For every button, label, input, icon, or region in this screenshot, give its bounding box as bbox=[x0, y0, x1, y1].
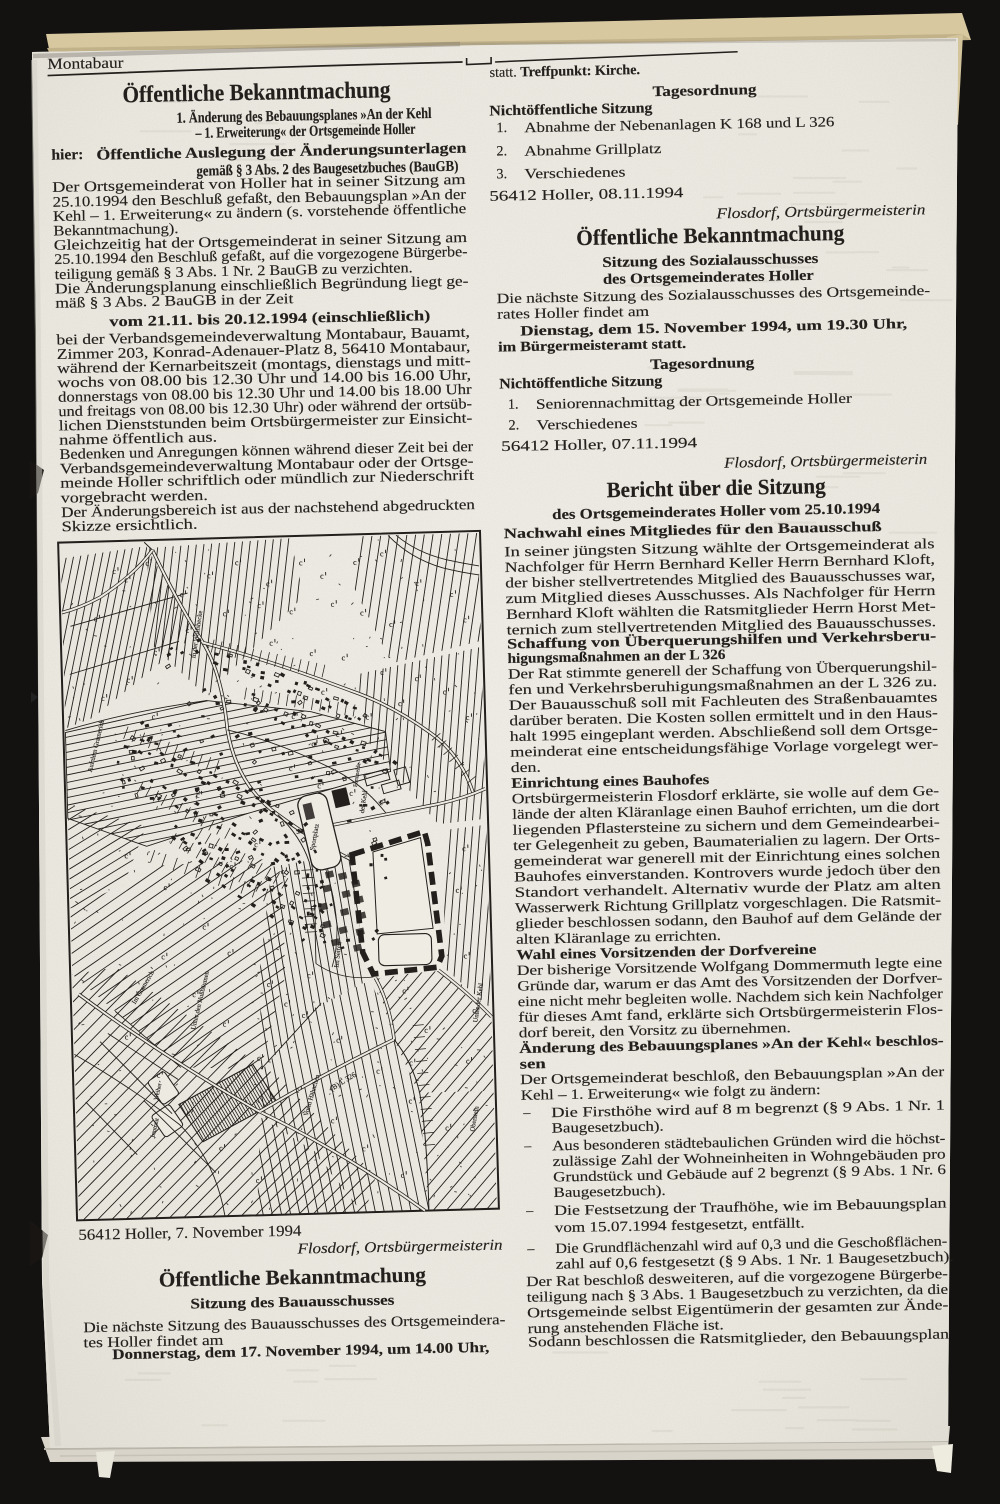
svg-text:Nichtöffentliche Sitzung: Nichtöffentliche Sitzung bbox=[499, 373, 663, 392]
svg-text:Abnahme Grillplatz: Abnahme Grillplatz bbox=[524, 141, 661, 160]
svg-text:–: – bbox=[526, 1241, 535, 1257]
svg-text:den.: den. bbox=[511, 760, 541, 777]
svg-text:Skizze ersichtlich.: Skizze ersichtlich. bbox=[61, 517, 197, 536]
svg-text:Öffentliche Bekanntmachung: Öffentliche Bekanntmachung bbox=[159, 1263, 427, 1292]
svg-text:sen: sen bbox=[520, 1056, 546, 1072]
svg-text:1.: 1. bbox=[508, 397, 519, 413]
svg-text:2.: 2. bbox=[496, 143, 507, 159]
svg-text:2.: 2. bbox=[508, 417, 519, 433]
svg-text:Tagesordnung: Tagesordnung bbox=[650, 355, 755, 373]
svg-text:Baugesetzbuch).: Baugesetzbuch). bbox=[553, 1183, 665, 1201]
svg-text:–: – bbox=[523, 1138, 532, 1154]
svg-text:Öffentliche Bekanntmachung: Öffentliche Bekanntmachung bbox=[122, 77, 391, 108]
svg-text:Öffentliche Bekanntmachung: Öffentliche Bekanntmachung bbox=[576, 220, 844, 250]
svg-text:Nichtöffentliche Sitzung: Nichtöffentliche Sitzung bbox=[489, 100, 653, 119]
svg-text:–: – bbox=[525, 1203, 534, 1219]
svg-text:Baugesetzbuch).: Baugesetzbuch). bbox=[552, 1119, 664, 1137]
svg-text:Tagesordnung: Tagesordnung bbox=[652, 82, 757, 100]
svg-text:Bericht über die Sitzung: Bericht über die Sitzung bbox=[606, 473, 825, 502]
svg-text:–: – bbox=[522, 1105, 531, 1121]
svg-text:1.: 1. bbox=[496, 120, 507, 136]
svg-text:statt. Treffpunkt: Kirche.: statt. Treffpunkt: Kirche. bbox=[489, 62, 640, 81]
svg-text:rates Holler findet am: rates Holler findet am bbox=[497, 304, 649, 323]
svg-text:hier:: hier: bbox=[51, 147, 83, 164]
svg-text:Montabaur: Montabaur bbox=[47, 55, 124, 73]
svg-text:Verschiedenes: Verschiedenes bbox=[536, 416, 638, 434]
svg-text:Verschiedenes: Verschiedenes bbox=[524, 164, 626, 182]
svg-text:3.: 3. bbox=[496, 166, 507, 182]
